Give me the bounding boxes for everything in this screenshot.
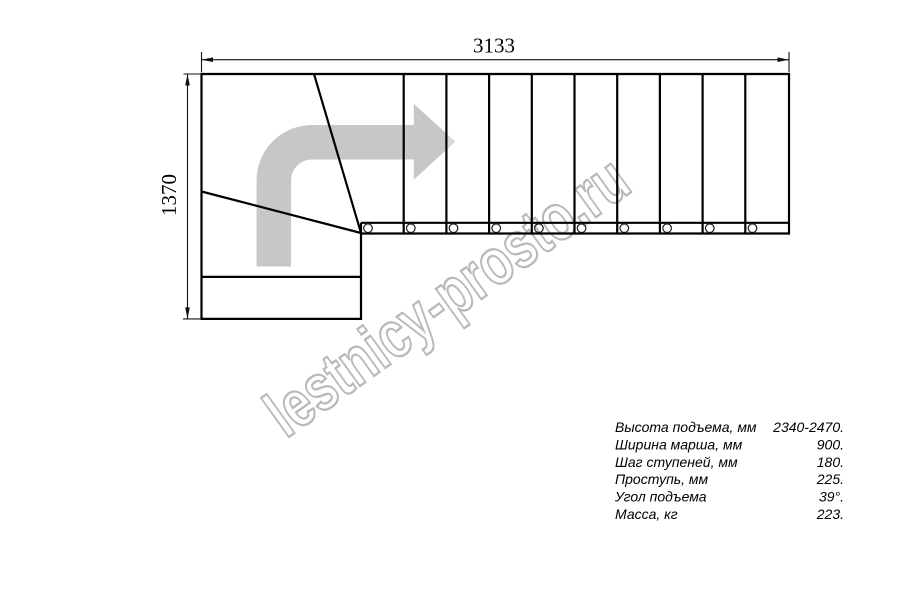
svg-text:Ширина марша, мм: Ширина марша, мм [615, 436, 743, 452]
svg-text:1370: 1370 [157, 174, 181, 216]
svg-text:3133: 3133 [473, 34, 515, 58]
svg-text:Шаг ступеней, мм: Шаг ступеней, мм [615, 454, 738, 470]
svg-text:39°.: 39°. [819, 489, 844, 505]
svg-text:225.: 225. [816, 471, 844, 487]
svg-text:Высота подъема, мм: Высота подъема, мм [615, 419, 757, 435]
svg-text:180.: 180. [817, 454, 844, 470]
svg-text:Масса, кг: Масса, кг [615, 506, 678, 522]
svg-text:Проступь, мм: Проступь, мм [615, 471, 709, 487]
svg-text:900.: 900. [817, 436, 844, 452]
svg-text:2340-2470.: 2340-2470. [772, 419, 844, 435]
svg-text:Угол подъема: Угол подъема [614, 489, 707, 505]
svg-text:223.: 223. [816, 506, 844, 522]
